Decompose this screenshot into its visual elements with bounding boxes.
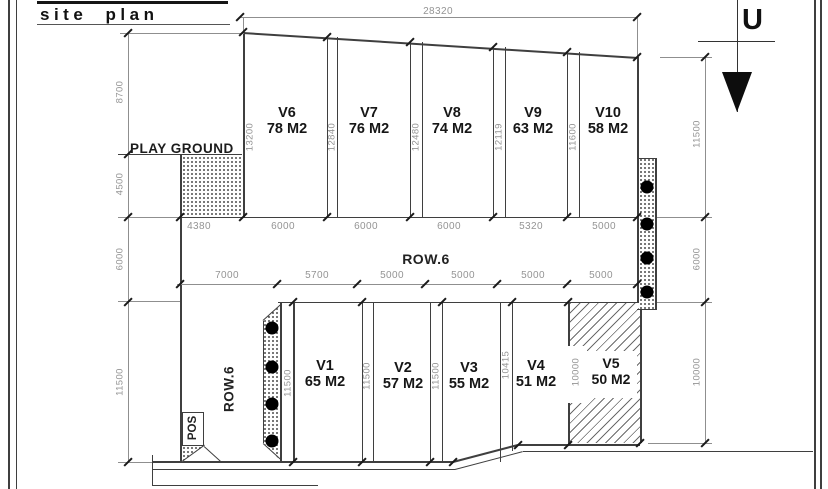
plot-label-v1: V1 65 M2 <box>305 358 345 390</box>
frame-left-inner <box>16 0 18 489</box>
plot-label-v8: V8 74 M2 <box>432 105 472 137</box>
green-strip-east-edge <box>637 309 656 311</box>
tree-icon <box>640 218 653 231</box>
dim-right-10000: 10000 <box>692 358 703 386</box>
bottom-edge-diagonal <box>453 444 518 463</box>
dim-depth-v7: 12840 <box>327 123 338 151</box>
plot-label-v2: V2 57 M2 <box>383 360 423 392</box>
dim-depth-v5: 10000 <box>571 356 582 388</box>
dim-ext <box>118 462 153 463</box>
dim-5000: 5000 <box>589 270 613 281</box>
bottom-edge-east <box>518 444 640 446</box>
plot-name: V5 <box>592 355 631 371</box>
dim-6000: 6000 <box>271 221 295 232</box>
divider-v7-v8 <box>422 42 423 218</box>
plot-name: V7 <box>349 105 389 121</box>
plot-name: V8 <box>432 105 472 121</box>
divider-v8-v9 <box>505 47 506 218</box>
dim-5000: 5000 <box>521 270 545 281</box>
tree-icon <box>640 286 653 299</box>
green-strip-west-edge <box>280 302 282 461</box>
plot-area: 51 M2 <box>516 374 556 390</box>
site-plan-drawing: site plan U 28320 PLAY GROUND 8700 4500 … <box>0 0 828 489</box>
dim-5000: 5000 <box>451 270 475 281</box>
dim-left-11500: 11500 <box>115 368 126 396</box>
dim-6000: 6000 <box>437 221 461 232</box>
green-strip-west-edge <box>263 321 264 443</box>
tree-icon <box>640 181 653 194</box>
plot-area: 78 M2 <box>267 121 307 137</box>
divider-v3-v4 <box>500 302 501 462</box>
plot-area: 57 M2 <box>383 376 423 392</box>
plot-area: 74 M2 <box>432 121 472 137</box>
dim-left-4500: 4500 <box>115 173 126 196</box>
plot-area: 65 M2 <box>305 374 345 390</box>
dim-right-11500: 11500 <box>692 120 703 148</box>
tree-icon <box>265 435 278 448</box>
dim-overall-top: 28320 <box>423 6 453 17</box>
dim-depth-v9: 12119 <box>494 123 505 151</box>
page-title: site plan <box>40 5 158 25</box>
road-lower-edge-diagonal <box>455 451 523 470</box>
plot-name: V3 <box>449 360 489 376</box>
frame-right-inner <box>814 0 816 489</box>
plot-label-v6: V6 78 M2 <box>267 105 307 137</box>
dim-6000: 6000 <box>354 221 378 232</box>
dim-line-right-chain <box>705 57 706 443</box>
plot-area: 50 M2 <box>592 371 631 387</box>
dim-depth-v10: 11600 <box>568 123 579 151</box>
dim-line-left-chain <box>128 33 129 462</box>
green-strip-east-edge <box>637 158 656 160</box>
bottom-edge-west <box>152 461 453 463</box>
plot-label-v9: V9 63 M2 <box>513 105 553 137</box>
dim-depth-v6: 13200 <box>245 123 256 151</box>
playground-hatch <box>182 156 243 218</box>
plot-name: V6 <box>267 105 307 121</box>
entrance-line-vertical <box>152 455 153 486</box>
tree-icon <box>265 322 278 335</box>
entrance-line-horizontal <box>152 485 318 486</box>
divider-v2-v3 <box>442 302 443 462</box>
road-label-horizontal: ROW.6 <box>402 251 450 267</box>
dim-right-6000: 6000 <box>692 248 703 271</box>
north-label: U <box>742 4 763 37</box>
plot-area: 63 M2 <box>513 121 553 137</box>
dim-depth-v2: 11500 <box>362 362 373 390</box>
plot-label-v7: V7 76 M2 <box>349 105 389 137</box>
dim-line-overall <box>240 17 637 18</box>
title-block-top-bar <box>37 1 228 4</box>
playground-label: PLAY GROUND <box>130 141 234 156</box>
road-lower-edge-east <box>523 451 813 452</box>
frame-left-outer <box>8 0 10 489</box>
dim-tick <box>448 457 457 466</box>
divider-v1-v2 <box>373 302 374 462</box>
dim-ext <box>637 17 638 57</box>
plot-area: 58 M2 <box>588 121 628 137</box>
plot-v5-right-wall <box>640 302 642 443</box>
dim-depth-v8: 12480 <box>411 123 422 151</box>
dim-5320: 5320 <box>519 221 543 232</box>
north-arrow-icon <box>722 72 752 112</box>
plot-label-v3: V3 55 M2 <box>449 360 489 392</box>
pos-label: POS <box>187 416 199 440</box>
plot-area: 76 M2 <box>349 121 389 137</box>
plot-name: V2 <box>383 360 423 376</box>
plot-name: V1 <box>305 358 345 374</box>
plot-label-v4: V4 51 M2 <box>516 358 556 390</box>
dim-ext <box>120 33 244 34</box>
dim-4380: 4380 <box>187 221 211 232</box>
dim-5000: 5000 <box>380 270 404 281</box>
north-cross-line <box>698 41 775 43</box>
tree-icon <box>640 252 653 265</box>
plot-label-v10: V10 58 M2 <box>588 105 628 137</box>
road-label-vertical: ROW.6 <box>222 366 237 412</box>
plot-name: V4 <box>516 358 556 374</box>
plot-area: 55 M2 <box>449 376 489 392</box>
divider-v9-v10 <box>579 52 580 218</box>
divider-v3-v4 <box>512 302 513 451</box>
dim-left-6000: 6000 <box>115 248 126 271</box>
plot-name: V9 <box>513 105 553 121</box>
frame-right-outer <box>820 0 822 489</box>
plot-label-v5: V5 50 M2 <box>592 355 631 387</box>
dim-depth-v3: 11500 <box>431 362 442 390</box>
dim-7000: 7000 <box>215 270 239 281</box>
road-lower-edge-west <box>153 469 455 470</box>
dim-depth-v4: 10415 <box>501 351 512 379</box>
dim-5700: 5700 <box>305 270 329 281</box>
green-strip-east-edge <box>655 158 657 310</box>
plot-name: V10 <box>588 105 628 121</box>
tree-icon <box>265 398 278 411</box>
dim-left-8700: 8700 <box>115 81 126 104</box>
dim-depth-v1: 11500 <box>283 369 294 397</box>
dim-5000: 5000 <box>592 221 616 232</box>
tree-icon <box>265 361 278 374</box>
